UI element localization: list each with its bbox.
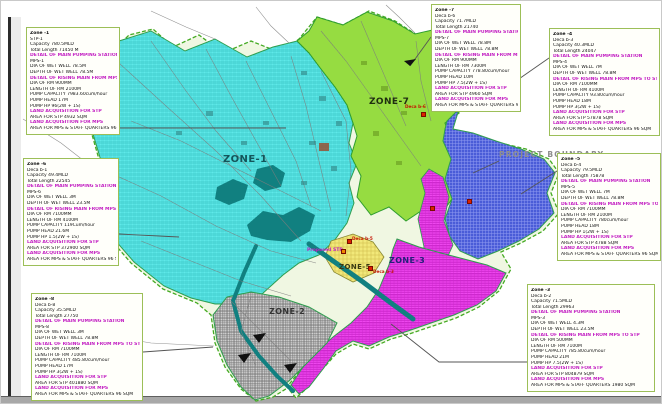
proposed-stp-marker xyxy=(341,249,346,254)
info-box-line: DETAIL OF MAIN PUMPING STATION xyxy=(561,179,658,185)
info-box-line: LAND ACQUISITION FOR STP xyxy=(435,86,518,92)
proposed-stp-label: Proposed STP xyxy=(307,248,343,253)
marker-label: Deca b-3 xyxy=(373,269,394,274)
map-label-zone-3: ZONE-3 xyxy=(389,256,425,265)
info-box-line: AREA FOR MPS & STAFF QUARTERS 96 SQM xyxy=(27,257,116,263)
zone-4-region xyxy=(443,109,555,259)
info-box-line: DETAIL OF MAIN PUMPING STATION xyxy=(35,319,140,325)
info-box-line: AREA FOR MPS & STAFF QUARTERS 96 SQM xyxy=(435,103,518,109)
info-box-zone-4: Zone -4Deca b-3Capacity 40.3MLDTotal Len… xyxy=(549,28,660,136)
map-label-zone-2: ZONE-2 xyxy=(269,307,305,316)
pump-station-marker xyxy=(467,199,472,204)
map-label-zone-7: ZONE-7 xyxy=(369,97,409,107)
info-box-line: DETAIL OF MAIN PUMPING STATION xyxy=(553,54,657,60)
marker-label: Deca b-6 xyxy=(405,104,426,109)
info-box-zone-5: Zone -5Deca b-4Capacity 79.5MLDTotal Len… xyxy=(557,153,661,261)
info-box-line: AREA FOR MPS & STAFF QUARTERS 1980 SQM xyxy=(531,383,652,389)
marker-label: Deca b-5 xyxy=(352,236,373,241)
pump-station-marker xyxy=(430,206,435,211)
map-label-zone-1: ZONE-1 xyxy=(223,154,267,165)
zoning-map-sheet: ZONE-1 ZONE-7 ZONE-2 ZONE-3 ZONE-5 PROJE… xyxy=(0,0,662,404)
info-box-zone-1: Zone -1STP-1Capacity 780.5MLDTotal Lengt… xyxy=(26,27,120,135)
built-up-blocks-brown xyxy=(319,143,329,151)
info-box-line: AREA FOR MPS & STAFF QUARTERS 96 SQM xyxy=(30,126,117,132)
info-box-line: AREA FOR MPS & STAFF QUARTERS 96 SQM xyxy=(561,252,658,258)
info-box-line: LAND ACQUISITION FOR MPS xyxy=(435,97,518,103)
info-box-line: AREA FOR MPS & STAFF QUARTERS 96 SQM xyxy=(35,392,140,398)
info-box-zone-6: Zone -6Deca b-1Capacity 49.4MLDTotal Len… xyxy=(23,158,119,266)
info-box-zone-7: Zone -7Deca b-6Capacity 71.7MLDTotal Len… xyxy=(431,4,521,112)
info-box-zone-3: Zone -3Deca b-2Capacity 71.5MLDTotal Len… xyxy=(527,284,655,392)
info-box-line: AREA FOR MPS & STAFF QUARTERS 96 SQM xyxy=(553,127,657,133)
info-box-zone-8: Zone -8Deca b-8Capacity 35.5MLDTotal Len… xyxy=(31,293,143,401)
map-label-zone-5: ZONE-5 xyxy=(339,263,371,271)
pump-station-marker xyxy=(421,112,426,117)
